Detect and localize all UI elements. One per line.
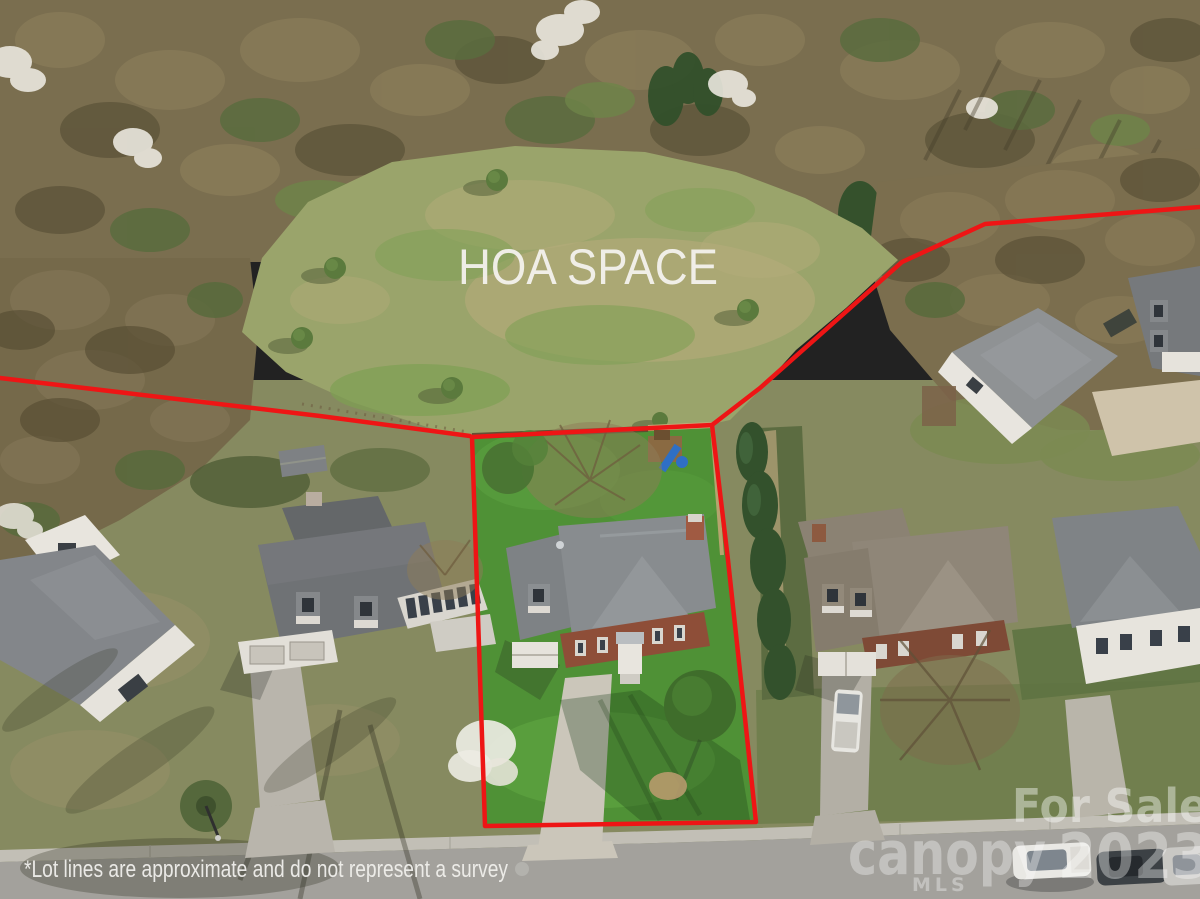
dormer <box>822 584 844 613</box>
satellite-dish <box>556 541 564 549</box>
disclaimer-bullet-icon <box>515 862 529 876</box>
chimney <box>812 524 826 542</box>
dormer <box>528 584 550 613</box>
watermark-mls: MLS <box>912 874 969 896</box>
dormer <box>354 596 378 628</box>
entry-porch <box>618 644 642 674</box>
disclaimer-text: *Lot lines are approximate and do not re… <box>24 856 508 883</box>
pickup-truck <box>831 689 863 753</box>
photo-canvas: HOA SPACE *Lot lines are approximate and… <box>0 0 1200 899</box>
hoa-space-label: HOA SPACE <box>458 239 718 295</box>
bare-tree <box>407 540 483 600</box>
tree-canopy <box>330 448 430 492</box>
dirt-patch <box>649 772 687 800</box>
aerial-property-photo: HOA SPACE *Lot lines are approximate and… <box>0 0 1200 899</box>
dormer <box>296 592 320 624</box>
dormer <box>850 588 872 617</box>
portico-roof <box>616 632 644 644</box>
deck <box>922 386 956 426</box>
watermark-year: 2023 <box>1058 820 1200 893</box>
garage-door <box>1162 352 1200 372</box>
